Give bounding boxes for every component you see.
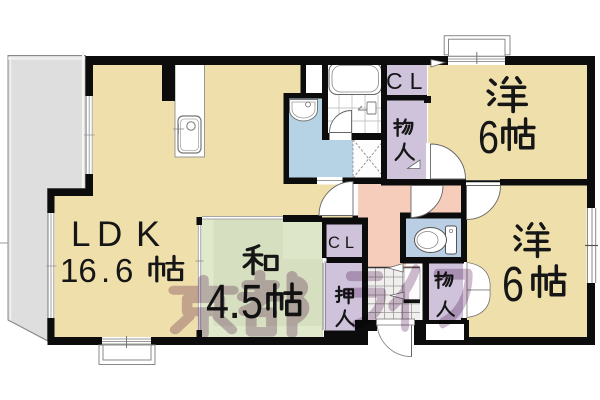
svg-text:CL: CL <box>328 234 359 252</box>
svg-text:.: . <box>228 276 241 329</box>
svg-text:16: 16 <box>60 252 97 289</box>
svg-text:CL: CL <box>386 68 429 94</box>
svg-text:.: . <box>101 252 110 289</box>
svg-text:K: K <box>136 215 160 254</box>
svg-text:6: 6 <box>478 111 499 163</box>
svg-text:D: D <box>97 215 122 254</box>
svg-text:6: 6 <box>115 252 133 289</box>
svg-text:6: 6 <box>502 258 524 312</box>
svg-text:L: L <box>71 215 90 254</box>
